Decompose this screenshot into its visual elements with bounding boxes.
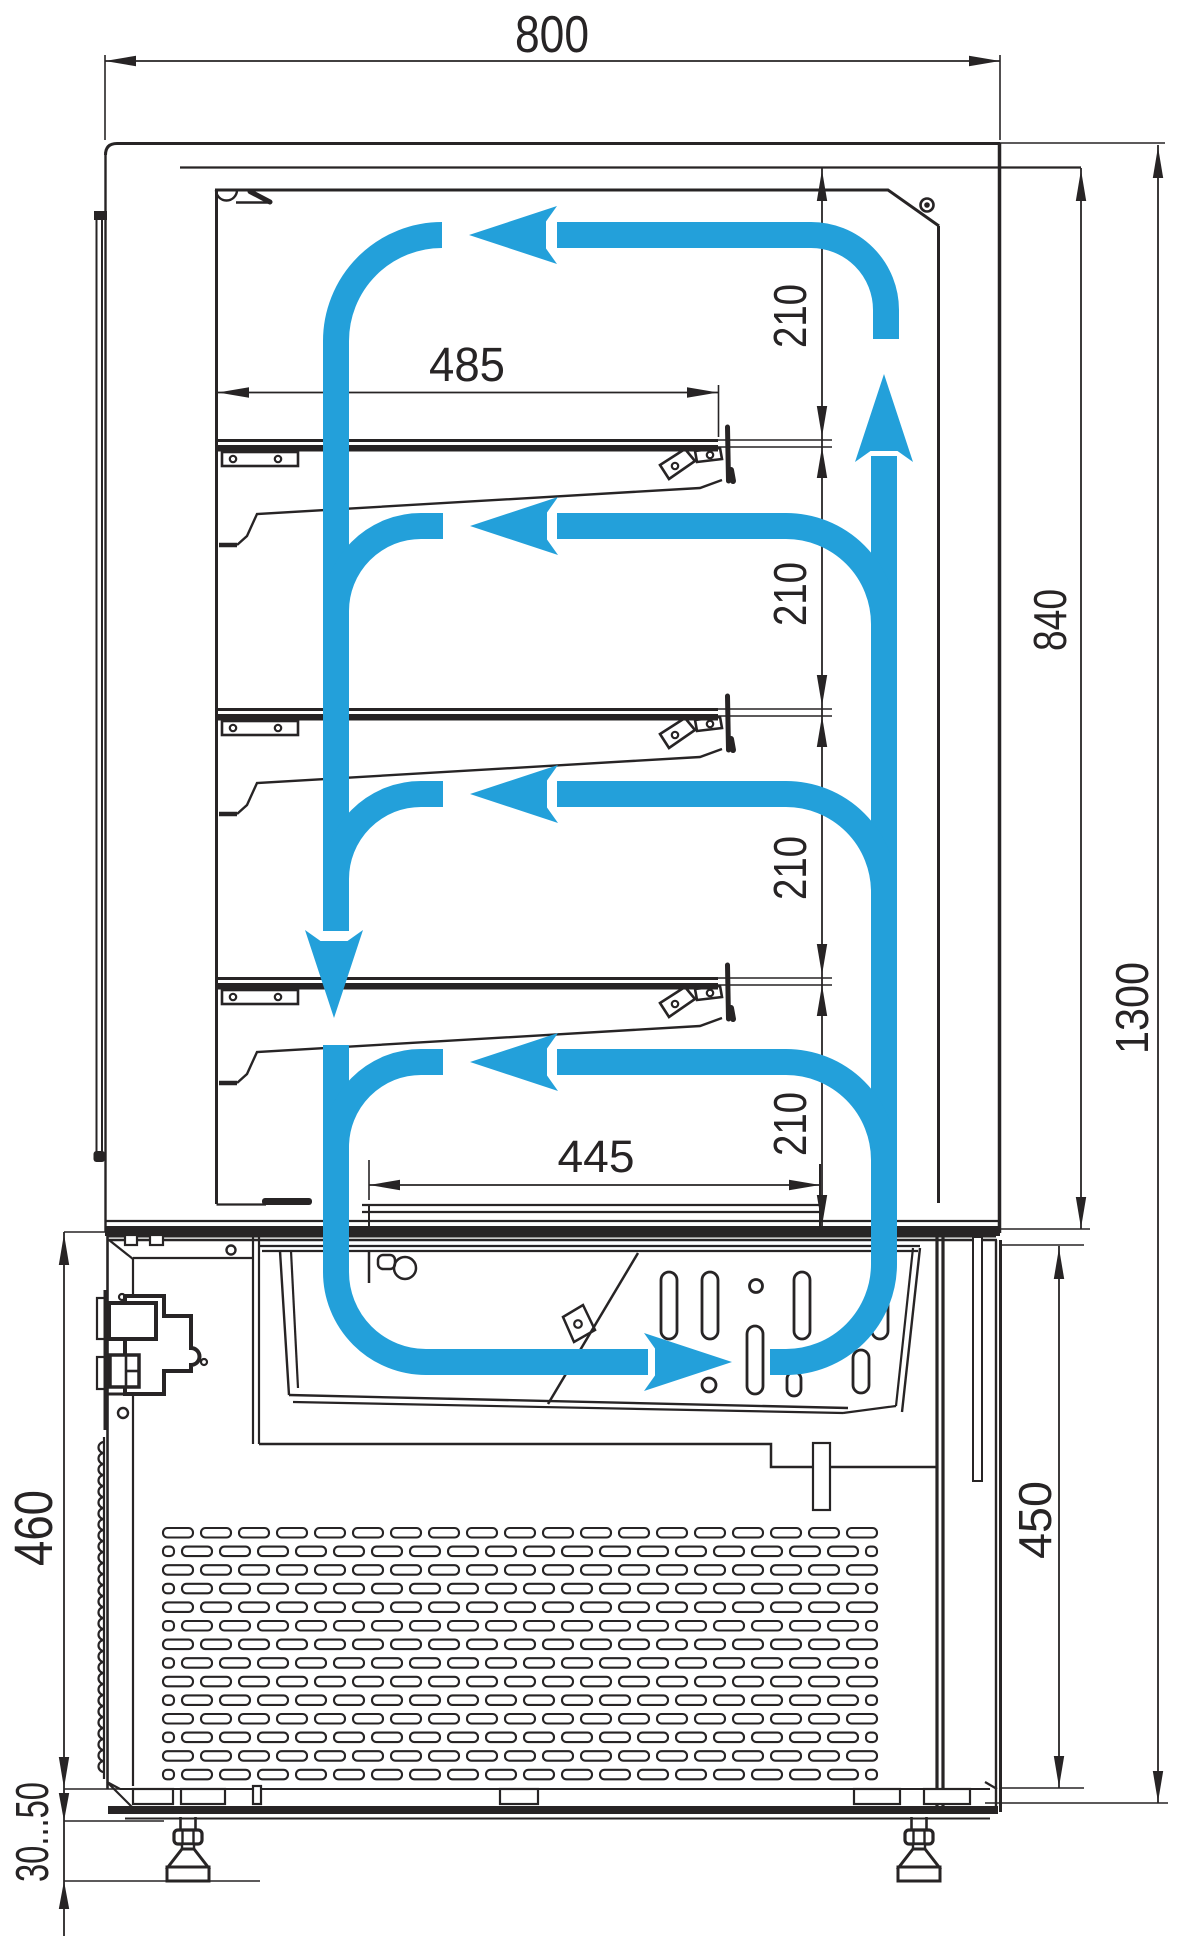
svg-text:840: 840	[1024, 589, 1076, 651]
svg-text:210: 210	[764, 284, 816, 348]
svg-text:485: 485	[429, 339, 505, 392]
svg-text:210: 210	[764, 1092, 816, 1156]
svg-text:460: 460	[4, 1490, 64, 1566]
svg-text:450: 450	[1009, 1481, 1061, 1559]
svg-text:210: 210	[764, 836, 816, 900]
svg-text:1300: 1300	[1106, 962, 1158, 1054]
svg-text:210: 210	[764, 562, 816, 626]
svg-text:445: 445	[558, 1131, 635, 1182]
svg-text:30...50: 30...50	[6, 1782, 58, 1882]
svg-text:800: 800	[515, 6, 589, 64]
